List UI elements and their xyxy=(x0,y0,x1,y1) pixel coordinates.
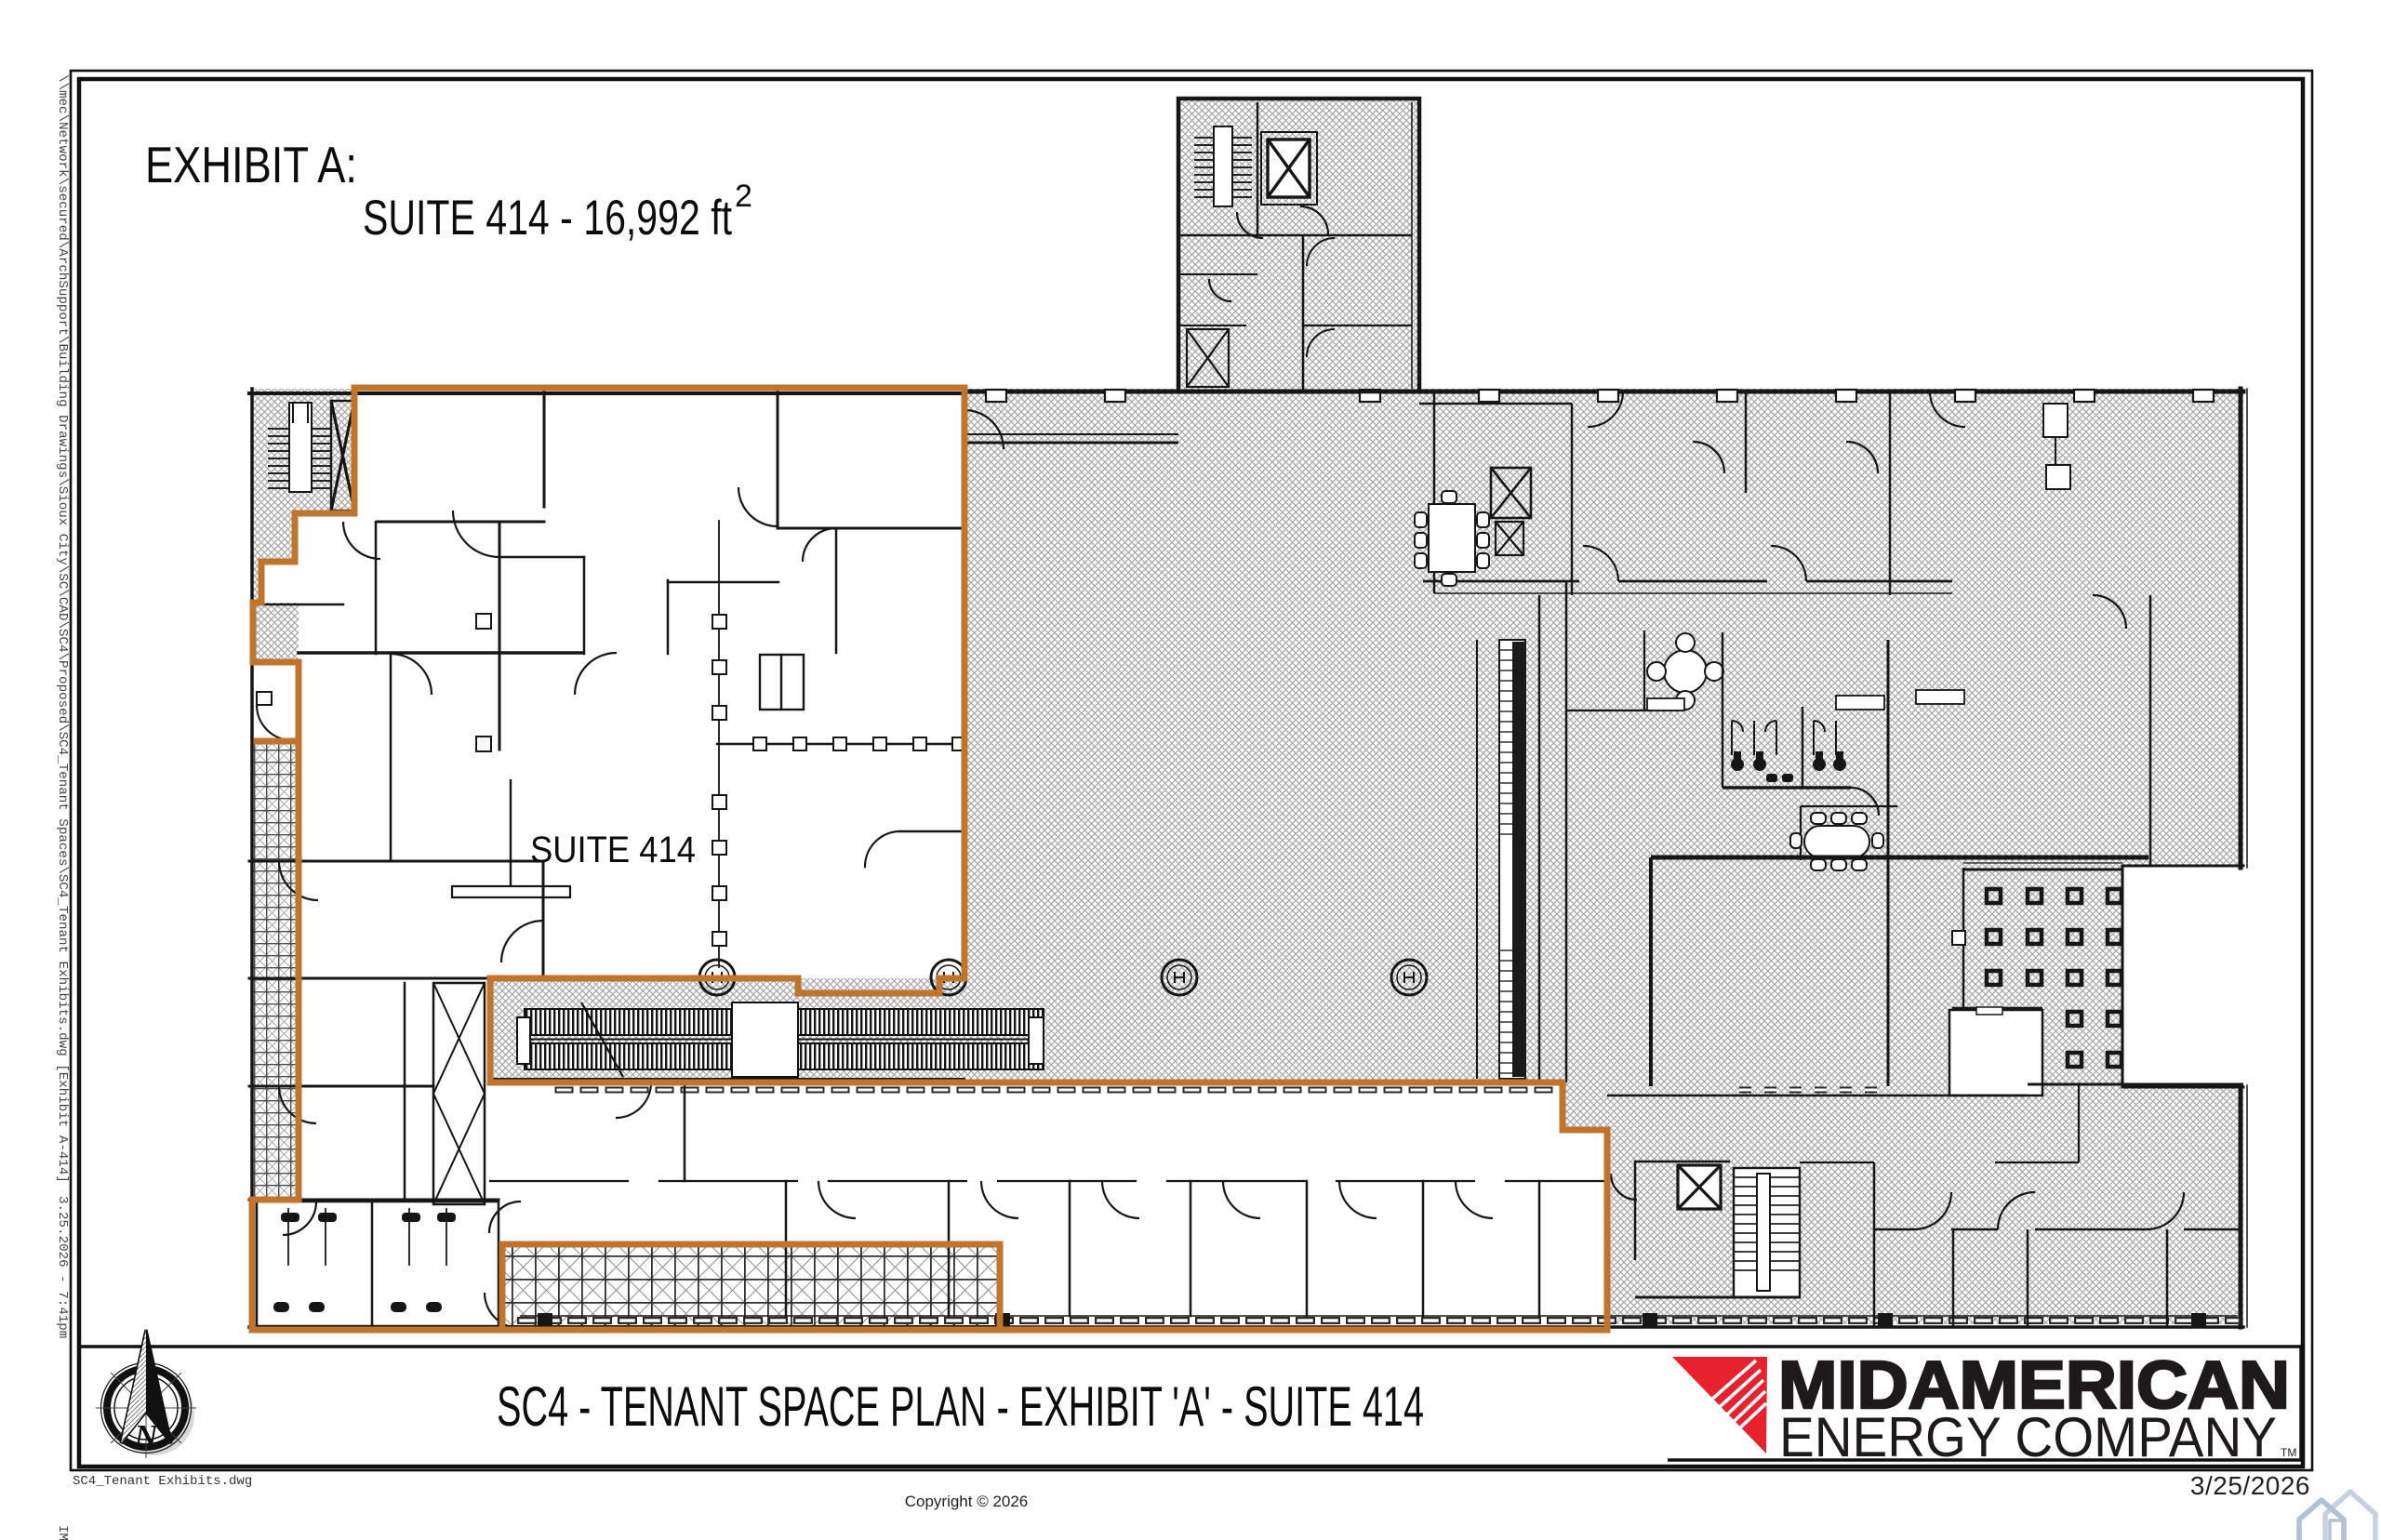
svg-text:3.25.2026 - 7:41pm: 3.25.2026 - 7:41pm xyxy=(55,1196,70,1338)
svg-text:\\mec\Network\secured\ArchSupp: \\mec\Network\secured\ArchSupport\Buildi… xyxy=(55,74,70,1183)
svg-text:SUITE 414: SUITE 414 xyxy=(530,830,696,870)
svg-text:2: 2 xyxy=(735,179,752,214)
svg-text:SUITE 414 - 16,992 ft: SUITE 414 - 16,992 ft xyxy=(363,191,732,246)
svg-text:EXHIBIT A:: EXHIBIT A: xyxy=(145,136,357,193)
svg-text:IM: IM xyxy=(55,1525,70,1540)
svg-text:3/25/2026: 3/25/2026 xyxy=(2190,1471,2310,1500)
svg-text:SC4 - TENANT SPACE PLAN - EXHI: SC4 - TENANT SPACE PLAN - EXHIBIT 'A' - … xyxy=(497,1375,1424,1438)
svg-text:Copyright © 2026: Copyright © 2026 xyxy=(905,1493,1029,1510)
svg-text:TM: TM xyxy=(2281,1446,2296,1459)
svg-text:ENERGY COMPANY: ENERGY COMPANY xyxy=(1779,1406,2277,1468)
svg-text:SC4_Tenant Exhibits.dwg: SC4_Tenant Exhibits.dwg xyxy=(73,1474,252,1489)
svg-text:N: N xyxy=(133,1418,159,1454)
